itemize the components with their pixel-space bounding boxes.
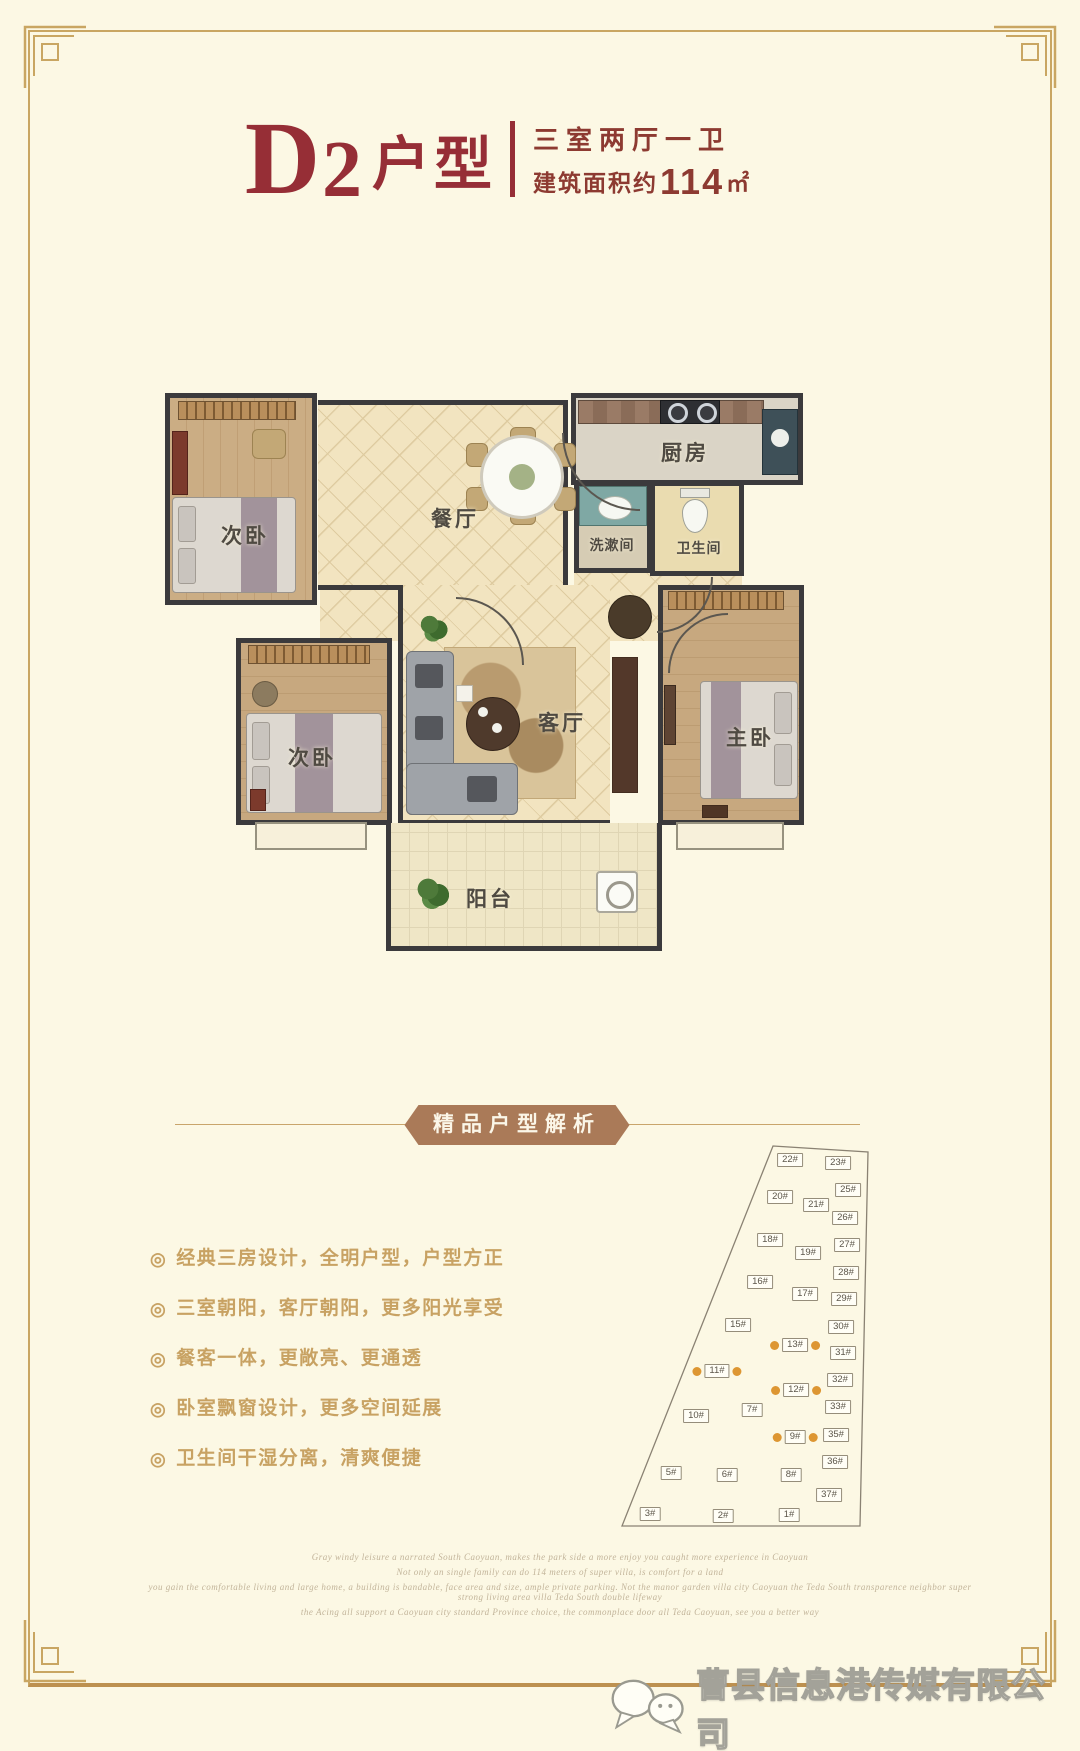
siteplan-building-7: 7# bbox=[742, 1403, 763, 1417]
side-table bbox=[456, 685, 473, 702]
script-line: the Acing all support a Caoyuan city sta… bbox=[140, 1607, 980, 1617]
siteplan-building-33: 33# bbox=[825, 1400, 851, 1414]
potted-plant bbox=[608, 595, 652, 639]
siteplan-building-36: 36# bbox=[822, 1455, 848, 1469]
pillow bbox=[774, 692, 792, 734]
area-unit: ㎡ bbox=[726, 164, 751, 198]
bullet-icon: ◎ bbox=[150, 1448, 167, 1470]
bullet-icon: ◎ bbox=[150, 1298, 167, 1320]
tv-console bbox=[612, 657, 638, 793]
nightstand bbox=[250, 789, 266, 811]
siteplan-building-22: 22# bbox=[777, 1153, 803, 1167]
siteplan-building-16: 16# bbox=[747, 1275, 773, 1289]
siteplan-building-25: 25# bbox=[835, 1183, 861, 1197]
siteplan-building-8: 8# bbox=[781, 1468, 802, 1482]
siteplan-building-28: 28# bbox=[833, 1266, 859, 1280]
unit-number: 2 bbox=[322, 134, 362, 206]
siteplan-building-32: 32# bbox=[827, 1373, 853, 1387]
siteplan-building-1: 1# bbox=[779, 1508, 800, 1522]
frame-corner-ornament-icon bbox=[992, 24, 1058, 90]
siteplan-building-10: 10# bbox=[683, 1409, 709, 1423]
siteplan-building-17: 17# bbox=[792, 1287, 818, 1301]
unit-area: 建筑面积约 114 ㎡ bbox=[533, 164, 751, 198]
toilet-tank bbox=[680, 488, 710, 498]
area-prefix: 建筑面积约 bbox=[533, 164, 658, 198]
siteplan-building-23: 23# bbox=[825, 1156, 851, 1170]
script-line: Gray windy leisure a narrated South Caoy… bbox=[140, 1552, 980, 1562]
tv-bench bbox=[664, 685, 676, 745]
bullet-icon: ◎ bbox=[150, 1248, 167, 1270]
siteplan-building-13: 13# bbox=[782, 1338, 808, 1352]
selling-point-text: 三室朝阳，客厅朝阳，更多阳光享受 bbox=[176, 1298, 504, 1320]
frame-corner-ornament-icon bbox=[22, 24, 88, 90]
bay-window-left bbox=[255, 822, 367, 850]
burner bbox=[697, 403, 717, 423]
room-label-master: 主卧 bbox=[726, 722, 774, 752]
selling-point: ◎经典三房设计，全明户型，户型方正 bbox=[150, 1248, 580, 1270]
siteplan-building-19: 19# bbox=[795, 1246, 821, 1260]
kitchen-sink-cabinet bbox=[762, 409, 798, 475]
balcony-plant bbox=[412, 873, 452, 913]
room-label-bedroom-top: 次卧 bbox=[221, 520, 269, 550]
bookshelf bbox=[248, 645, 370, 664]
sofa-cushion bbox=[415, 716, 443, 740]
coffee-table bbox=[466, 697, 520, 751]
watermark-text: 曹县信息港传媒有限公司 bbox=[696, 1658, 1080, 1751]
selling-point: ◎三室朝阳，客厅朝阳，更多阳光享受 bbox=[150, 1298, 580, 1320]
bullet-icon: ◎ bbox=[150, 1348, 167, 1370]
sofa-chaise bbox=[406, 763, 518, 815]
selling-point-text: 卫生间干湿分离，清爽便捷 bbox=[176, 1448, 422, 1470]
siteplan-building-37: 37# bbox=[816, 1488, 842, 1502]
room-label-bedroom-bottom: 次卧 bbox=[288, 742, 336, 772]
burner bbox=[668, 403, 688, 423]
selling-point-text: 卧室飘窗设计，更多空间延展 bbox=[176, 1398, 443, 1420]
selling-point: ◎卫生间干湿分离，清爽便捷 bbox=[150, 1448, 580, 1470]
siteplan-building-5: 5# bbox=[661, 1466, 682, 1480]
siteplan-building-21: 21# bbox=[803, 1198, 829, 1212]
sofa-cushion bbox=[415, 664, 443, 688]
washing-machine bbox=[596, 871, 638, 913]
floorplan: 次卧 餐厅 厨房 洗漱间 卫生间 客厅 主卧 次卧 阳台 bbox=[160, 385, 810, 965]
siteplan-building-29: 29# bbox=[831, 1292, 857, 1306]
pillow bbox=[774, 744, 792, 786]
siteplan-building-15: 15# bbox=[725, 1318, 751, 1332]
stove bbox=[660, 400, 720, 424]
chest bbox=[702, 805, 728, 818]
selling-points-list: ◎经典三房设计，全明户型，户型方正 ◎三室朝阳，客厅朝阳，更多阳光享受 ◎餐客一… bbox=[150, 1248, 580, 1498]
siteplan-building-30: 30# bbox=[828, 1320, 854, 1334]
room-label-bathroom: 卫生间 bbox=[677, 538, 722, 558]
watermark: 曹县信息港传媒有限公司 bbox=[608, 1658, 1080, 1751]
unit-type-label: 户型 bbox=[372, 117, 496, 201]
siteplan-building-12: 12# bbox=[783, 1383, 809, 1397]
selling-point: ◎餐客一体，更敞亮、更通透 bbox=[150, 1348, 580, 1370]
wardrobe bbox=[178, 401, 296, 420]
selling-point-text: 经典三房设计，全明户型，户型方正 bbox=[176, 1248, 504, 1270]
poster-page: D 2 户型 三室两厅一卫 建筑面积约 114 ㎡ bbox=[0, 0, 1080, 1751]
siteplan-building-31: 31# bbox=[830, 1346, 856, 1360]
siteplan-building-35: 35# bbox=[823, 1428, 849, 1442]
room-label-balcony: 阳台 bbox=[466, 883, 514, 913]
plant bbox=[416, 611, 450, 645]
room-label-dining: 餐厅 bbox=[431, 503, 479, 533]
siteplan: 22#23#25#20#21#26#18#27#19#28#16#17#29#1… bbox=[598, 1128, 1008, 1588]
unit-letter: D bbox=[245, 112, 320, 206]
bay-window-right bbox=[676, 822, 784, 850]
unit-spec: 三室两厅一卫 bbox=[533, 120, 751, 157]
decorative-script: Gray windy leisure a narrated South Caoy… bbox=[140, 1552, 980, 1622]
frame-corner-ornament-icon bbox=[22, 1618, 88, 1684]
siteplan-building-3: 3# bbox=[640, 1507, 661, 1521]
siteplan-building-18: 18# bbox=[757, 1233, 783, 1247]
area-value: 114 bbox=[660, 167, 724, 198]
room-label-kitchen: 厨房 bbox=[661, 437, 709, 467]
room-label-washroom: 洗漱间 bbox=[590, 535, 635, 555]
stool bbox=[252, 681, 278, 707]
sofa-cushion bbox=[467, 776, 497, 802]
section-title: 精品户型解析 bbox=[405, 1105, 630, 1145]
pillow bbox=[178, 548, 196, 584]
script-line: you gain the comfortable living and larg… bbox=[140, 1582, 980, 1602]
armchair bbox=[252, 429, 286, 459]
siteplan-building-20: 20# bbox=[767, 1190, 793, 1204]
dresser bbox=[172, 431, 188, 495]
siteplan-building-26: 26# bbox=[832, 1211, 858, 1225]
room-label-living: 客厅 bbox=[538, 707, 586, 737]
siteplan-building-11: 11# bbox=[704, 1364, 729, 1378]
chat-bubbles-icon bbox=[608, 1674, 690, 1741]
siteplan-building-27: 27# bbox=[834, 1238, 860, 1252]
title-block: D 2 户型 三室两厅一卫 建筑面积约 114 ㎡ bbox=[0, 112, 1038, 206]
siteplan-building-2: 2# bbox=[713, 1509, 734, 1523]
unit-subtitle: 三室两厅一卫 建筑面积约 114 ㎡ bbox=[533, 120, 751, 198]
script-line: Not only an single family can do 114 met… bbox=[140, 1567, 980, 1577]
bullet-icon: ◎ bbox=[150, 1398, 167, 1420]
pillow bbox=[252, 722, 270, 760]
selling-point: ◎卧室飘窗设计，更多空间延展 bbox=[150, 1398, 580, 1420]
selling-point-text: 餐客一体，更敞亮、更通透 bbox=[176, 1348, 422, 1370]
siteplan-building-9: 9# bbox=[785, 1430, 806, 1444]
siteplan-building-6: 6# bbox=[717, 1468, 738, 1482]
pillow bbox=[178, 506, 196, 542]
title-divider bbox=[510, 121, 515, 197]
dining-table bbox=[480, 435, 564, 519]
